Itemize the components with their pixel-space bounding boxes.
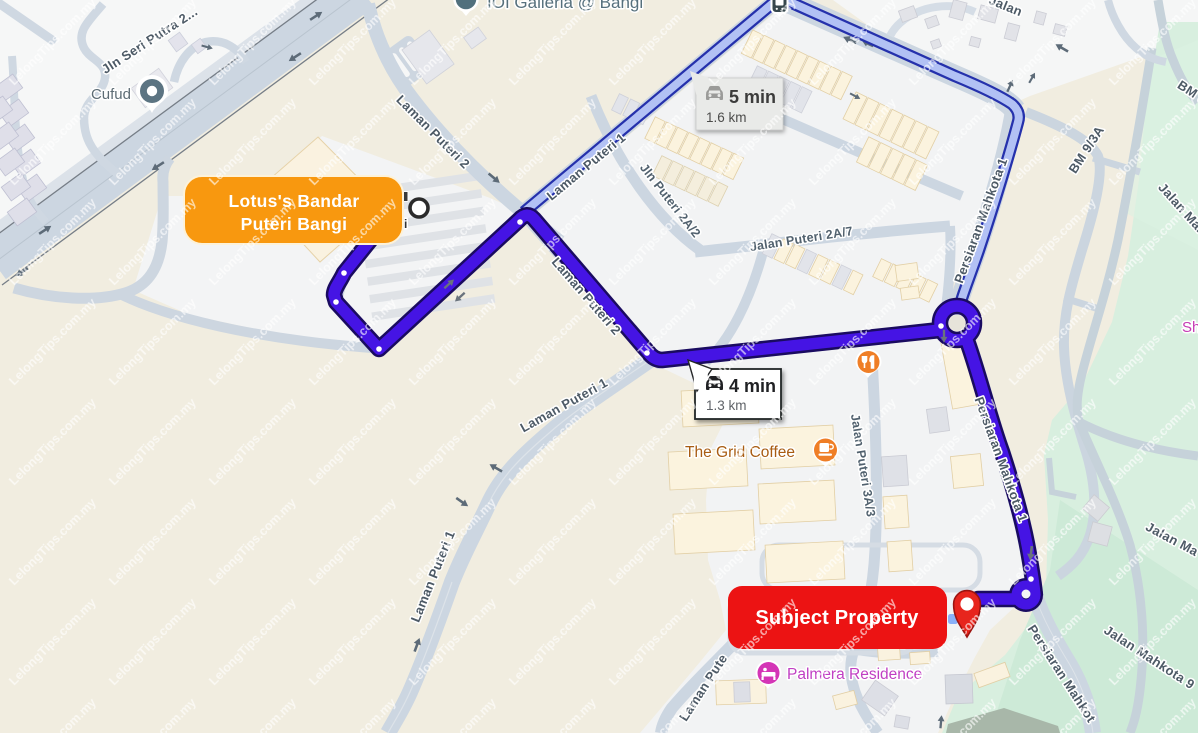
svg-text:IOI Galleria @ Bangi: IOI Galleria @ Bangi <box>487 0 643 12</box>
svg-text:Cufud: Cufud <box>91 86 131 103</box>
svg-text:1.3 km: 1.3 km <box>706 398 747 413</box>
svg-text:Sh: Sh <box>1182 319 1198 336</box>
svg-text:i: i <box>404 217 407 231</box>
svg-text:5 min: 5 min <box>729 87 776 107</box>
svg-text:4 min: 4 min <box>729 376 776 396</box>
svg-text:1.6 km: 1.6 km <box>706 110 747 125</box>
